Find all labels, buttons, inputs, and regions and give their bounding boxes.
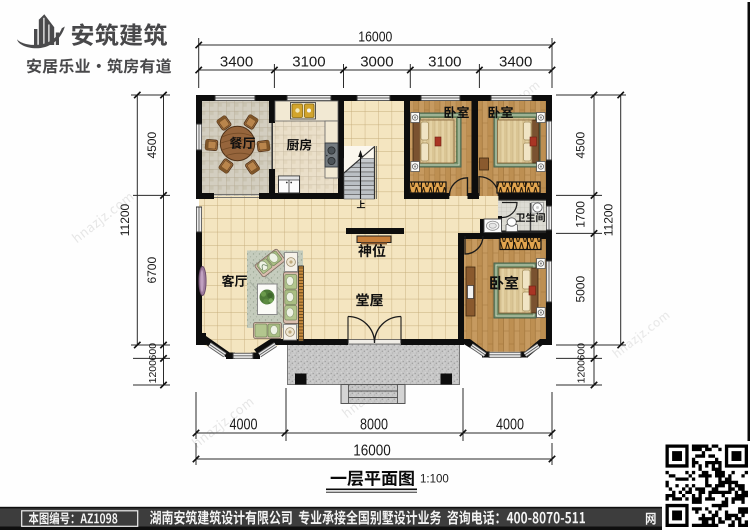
svg-text:4000: 4000 — [230, 417, 258, 434]
svg-text:3100: 3100 — [428, 54, 461, 71]
svg-text:3400: 3400 — [220, 54, 253, 71]
svg-text:3100: 3100 — [292, 54, 325, 71]
svg-text:16000: 16000 — [358, 29, 392, 46]
svg-text:1200: 1200 — [147, 360, 159, 384]
svg-text:600: 600 — [147, 343, 159, 361]
svg-text:16000: 16000 — [353, 443, 391, 460]
svg-text:3000: 3000 — [360, 54, 393, 71]
svg-text:11200: 11200 — [602, 203, 616, 236]
svg-text:4500: 4500 — [574, 132, 588, 159]
svg-text:1200: 1200 — [576, 360, 588, 384]
svg-text:1:100: 1:100 — [420, 474, 449, 486]
svg-text:600: 600 — [576, 343, 588, 361]
svg-text:11200: 11200 — [118, 203, 132, 236]
svg-text:3400: 3400 — [499, 54, 532, 71]
svg-text:8000: 8000 — [360, 417, 388, 434]
svg-text:1700: 1700 — [574, 201, 588, 228]
svg-text:5000: 5000 — [574, 276, 588, 303]
svg-text:6700: 6700 — [145, 257, 159, 284]
svg-text:4000: 4000 — [496, 417, 524, 434]
svg-text:4500: 4500 — [145, 132, 159, 159]
